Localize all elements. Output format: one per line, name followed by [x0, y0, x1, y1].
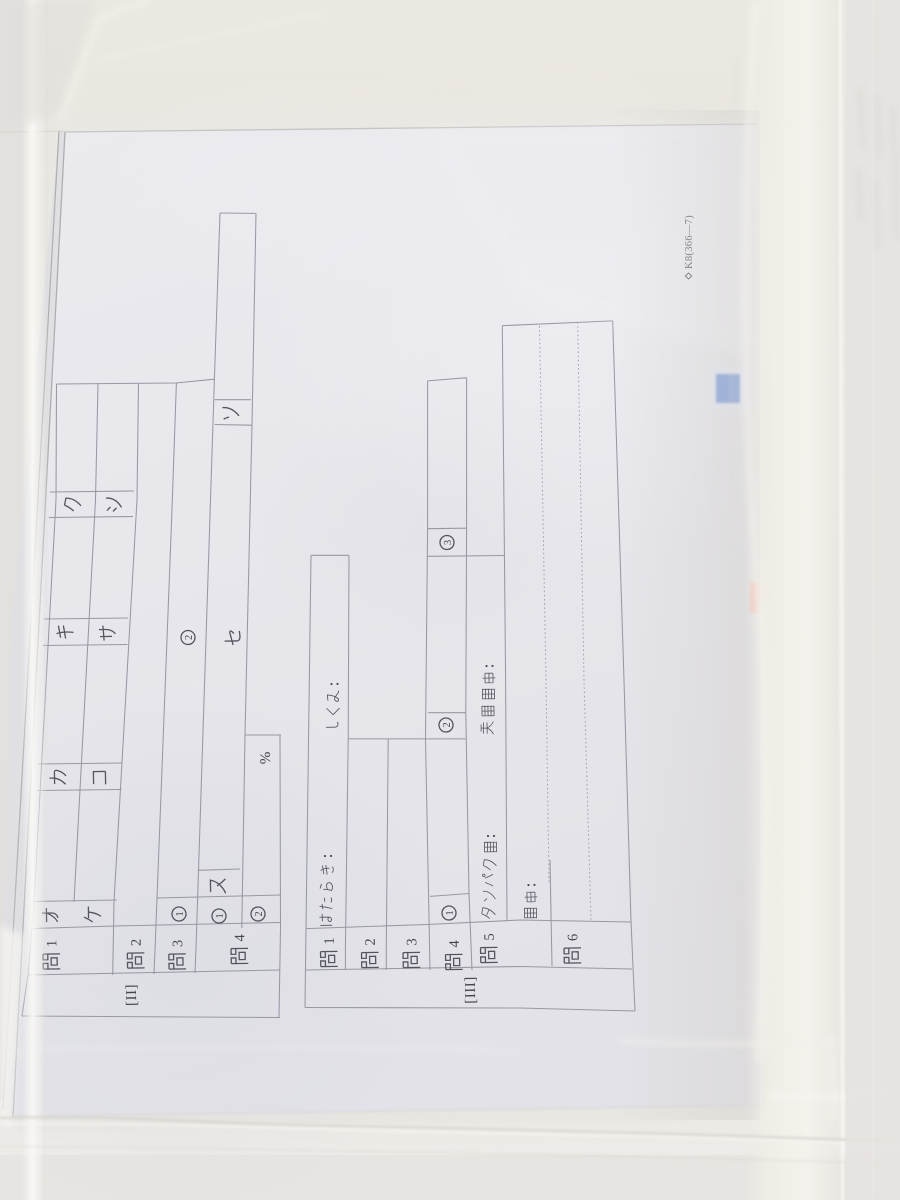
svg-text:%: %	[258, 752, 274, 765]
svg-text:1: 1	[322, 937, 338, 945]
svg-text:2: 2	[254, 911, 265, 916]
svg-text:[II]: [II]	[124, 984, 140, 1006]
svg-text:1: 1	[445, 910, 456, 915]
svg-text:3: 3	[170, 940, 186, 948]
svg-text:[III]: [III]	[463, 976, 479, 1004]
svg-text:3: 3	[404, 938, 420, 946]
svg-text:6: 6	[565, 934, 581, 942]
svg-text:5: 5	[482, 933, 498, 941]
svg-text:2: 2	[363, 938, 379, 946]
svg-text:1: 1	[215, 913, 226, 918]
svg-text:4: 4	[232, 933, 248, 941]
svg-text:1: 1	[175, 911, 186, 916]
svg-text:2: 2	[184, 635, 195, 640]
svg-text:2: 2	[442, 722, 453, 727]
svg-text:4: 4	[447, 939, 463, 947]
svg-text:3: 3	[443, 540, 454, 545]
svg-text:2: 2	[129, 939, 145, 947]
